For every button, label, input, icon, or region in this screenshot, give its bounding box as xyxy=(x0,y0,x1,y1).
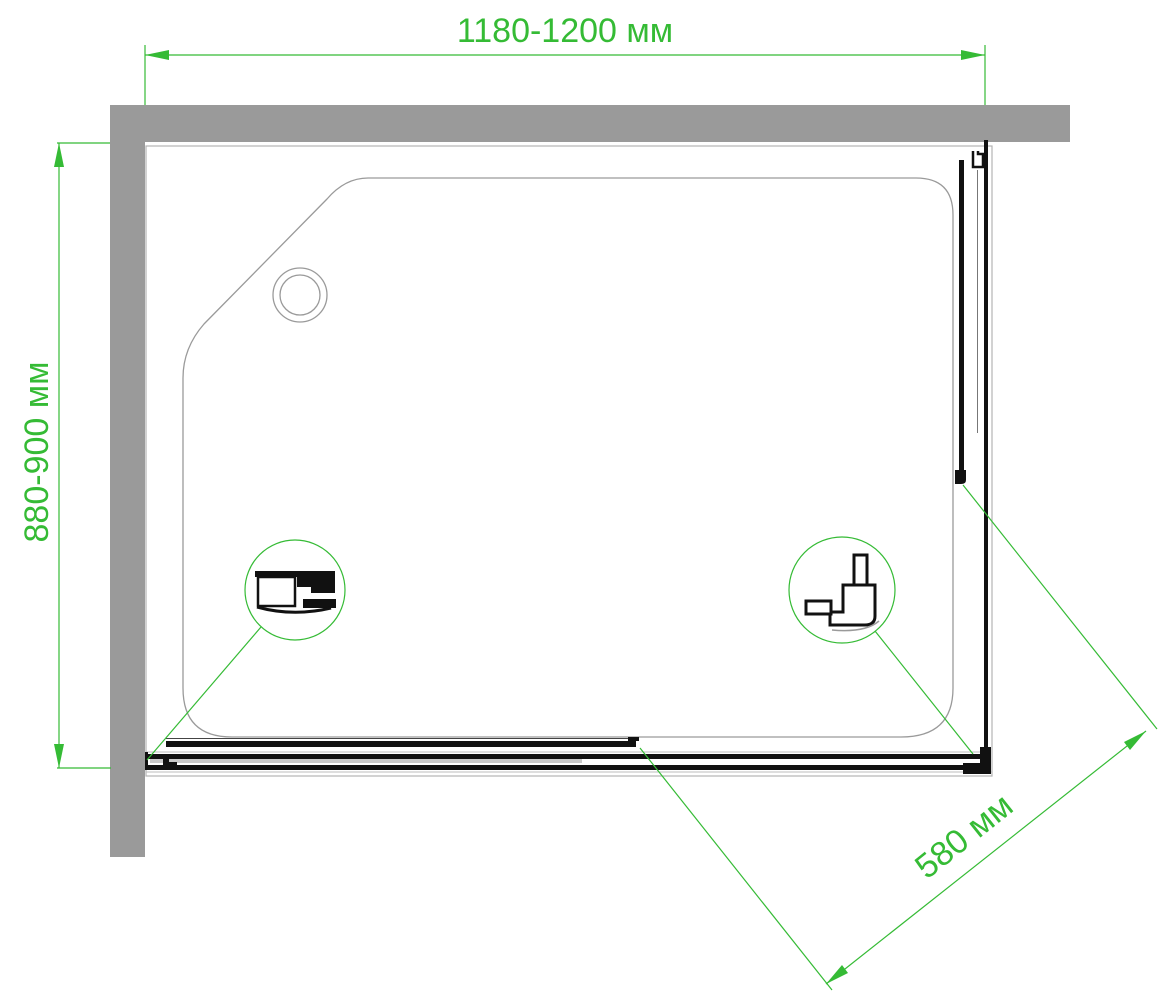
width-dimension-label: 1180-1200 мм xyxy=(457,12,673,50)
depth-dimension: 880-900 мм xyxy=(18,143,111,768)
left-wall-profile xyxy=(145,752,148,770)
detail-circle-right-leader xyxy=(875,631,973,754)
door-track-lower xyxy=(146,765,963,770)
depth-dimension-label: 880-900 мм xyxy=(18,362,56,543)
right-frame-profile xyxy=(984,140,988,752)
shower-tray-outline xyxy=(183,178,953,737)
rail-profile-detail xyxy=(255,571,336,612)
fixed-glass-panel xyxy=(959,160,964,472)
depth-arrow-top-icon xyxy=(54,143,64,167)
drain-outer-ring xyxy=(273,268,327,322)
corner-profile-detail xyxy=(806,555,879,631)
technical-drawing-canvas: 1180-1200 мм 880-900 мм 580 мм xyxy=(0,0,1166,1000)
entry-extension-door xyxy=(640,748,832,990)
width-arrow-left-icon xyxy=(145,50,169,60)
right-side-assembly xyxy=(955,140,988,752)
width-dimension: 1180-1200 мм xyxy=(145,12,985,105)
corner-profile-block xyxy=(830,585,875,625)
bottom-rail-assembly xyxy=(145,737,992,774)
top-wall xyxy=(110,105,1070,142)
entry-arrow-lower-icon xyxy=(826,965,848,984)
rail-profile-step-lower xyxy=(303,599,336,608)
left-wall xyxy=(110,105,145,857)
sliding-door-end-hook xyxy=(628,737,639,741)
corner-profile-left-bar xyxy=(806,601,831,614)
fixed-panel-foot xyxy=(955,470,966,484)
door-guide-bar xyxy=(150,759,582,763)
width-arrow-right-icon xyxy=(961,50,985,60)
entry-arrow-upper-icon xyxy=(1124,731,1146,750)
rail-profile-left-box xyxy=(258,577,295,606)
drain-inner-ring xyxy=(280,275,320,315)
sliding-door-panel xyxy=(166,741,636,747)
enclosure-outer-frame xyxy=(146,146,992,776)
wall-profile-hook xyxy=(973,151,983,167)
corner-profile-post xyxy=(854,555,867,585)
entry-dimension-label: 580 мм xyxy=(908,786,1020,886)
rail-profile-step-upper xyxy=(297,577,335,593)
drain-icon xyxy=(273,268,327,322)
door-track-upper xyxy=(146,754,980,759)
detail-circle-left xyxy=(147,540,345,760)
detail-circle-left-leader xyxy=(147,627,261,760)
depth-arrow-bottom-icon xyxy=(54,744,64,768)
detail-circle-right xyxy=(789,537,973,754)
